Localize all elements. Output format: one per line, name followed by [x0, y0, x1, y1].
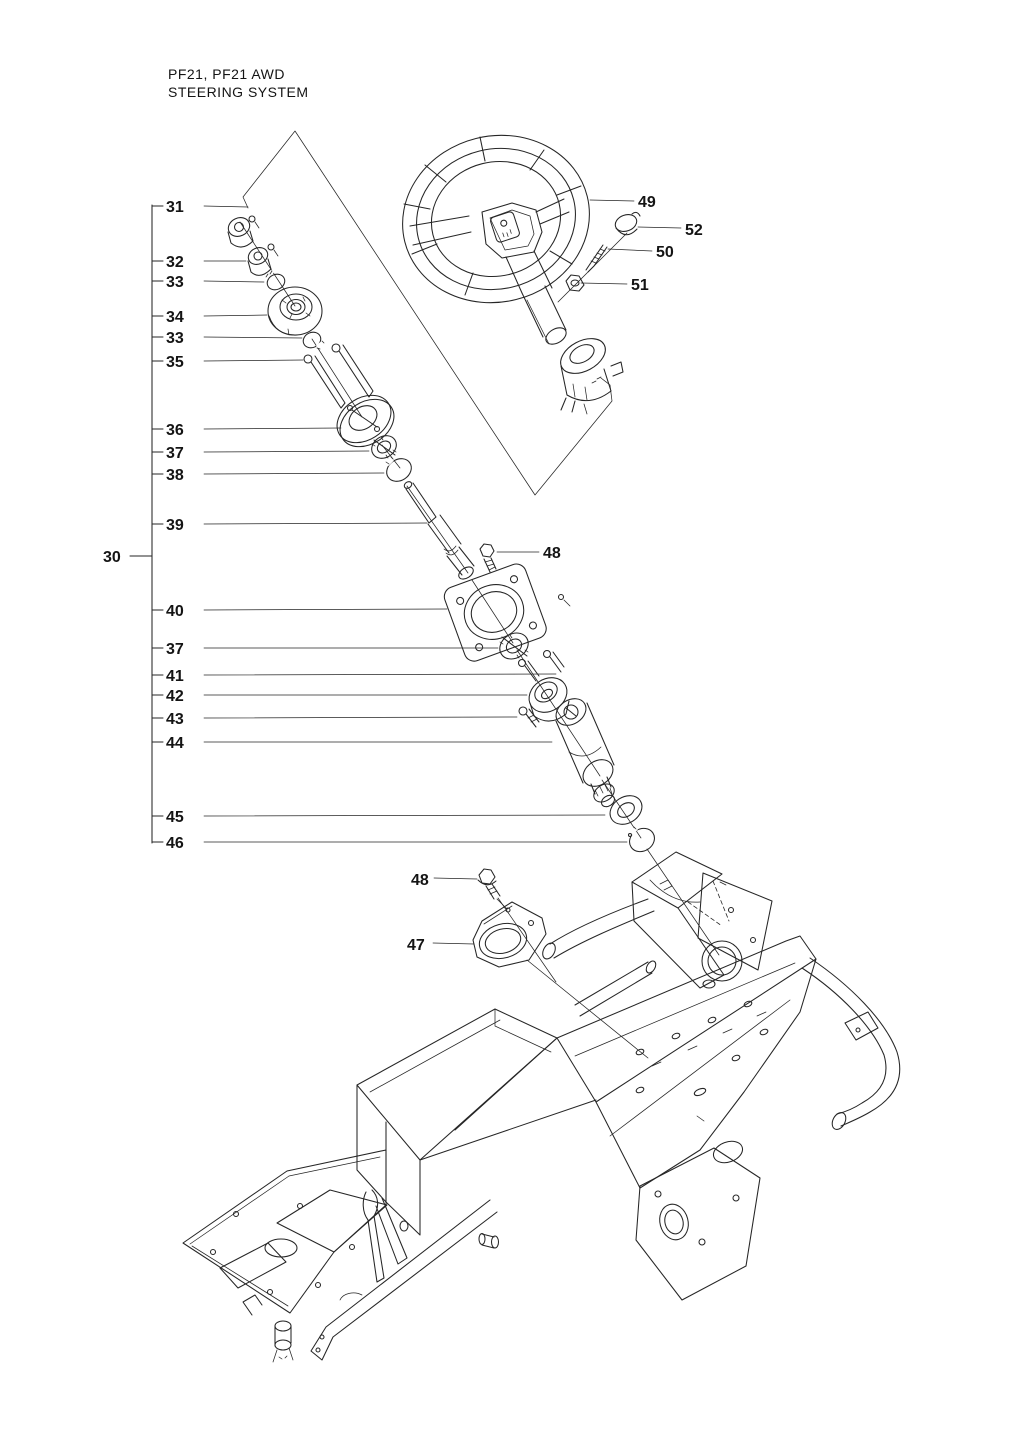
callout-47: 47	[407, 937, 425, 954]
column-parts	[225, 214, 659, 856]
floor-pan	[183, 1150, 387, 1313]
callout-48-lower: 48	[411, 872, 429, 889]
callout-32: 32	[166, 254, 184, 271]
callout-37-upper: 37	[166, 445, 184, 462]
tube-stub	[540, 899, 654, 961]
callout-33-upper: 33	[166, 274, 184, 291]
part-40-mount-plate	[442, 561, 570, 664]
callout-52: 52	[685, 222, 703, 239]
callout-40: 40	[166, 603, 184, 620]
steering-shaft-coupler	[555, 331, 623, 412]
bolt-48-lower	[478, 869, 507, 909]
part-31-bushing	[225, 214, 259, 247]
callout-46: 46	[166, 835, 184, 852]
front-rail	[311, 1200, 497, 1360]
wheel-hub-pad	[482, 203, 542, 258]
callout-37-lower: 37	[166, 641, 184, 658]
part-38-snap-ring	[382, 454, 415, 486]
support-bracket	[632, 852, 772, 988]
callout-44: 44	[166, 735, 184, 752]
callout-35: 35	[166, 354, 184, 371]
callout-36: 36	[166, 422, 184, 439]
wheel-rim-segments	[404, 137, 581, 295]
wheel-spokes	[410, 199, 569, 293]
part-46-snap-ring	[625, 824, 659, 857]
callout-31: 31	[166, 199, 184, 216]
chassis-frame	[183, 852, 900, 1362]
callout-48-upper: 48	[543, 545, 561, 562]
part-37-bearing-upper	[367, 431, 400, 463]
front-post	[243, 1295, 293, 1362]
callout-49: 49	[638, 194, 656, 211]
callout-42: 42	[166, 688, 184, 705]
callout-38: 38	[166, 467, 184, 484]
part-34-bearing-boss	[268, 287, 322, 335]
callout-33-lower: 33	[166, 330, 184, 347]
part-32-bushing	[246, 244, 278, 275]
handle-tube	[802, 958, 900, 1132]
steering-wheel	[385, 116, 608, 348]
callout-51: 51	[631, 277, 649, 294]
callout-41: 41	[166, 668, 184, 685]
callout-bracket	[130, 205, 163, 843]
callout-34: 34	[166, 309, 184, 326]
lower-axle-plate	[636, 1137, 760, 1300]
frame-pin	[479, 1234, 499, 1249]
part-37-bearing-lower	[495, 628, 533, 664]
callout-leader-lines	[204, 200, 681, 944]
cap-52	[613, 212, 640, 235]
part-42-cup	[523, 671, 574, 721]
callout-45: 45	[166, 809, 184, 826]
part-36-flange	[328, 386, 403, 457]
steering-system-exploded-diagram: PF21, PF21 AWD STEERING SYSTEM	[0, 0, 1024, 1435]
part-44-steering-valve	[551, 693, 618, 809]
diagram-page: PF21, PF21 AWD STEERING SYSTEM	[0, 0, 1024, 1435]
callout-43: 43	[166, 711, 184, 728]
screw-50	[586, 245, 607, 272]
callout-50: 50	[656, 244, 674, 261]
title-line-1: PF21, PF21 AWD	[168, 66, 285, 82]
tie-rod	[575, 959, 658, 1016]
wheel-fasteners	[566, 212, 640, 291]
callout-annotations: 30 31 32 33 34 33 35 36 37 38 39 40 37 4…	[103, 194, 703, 954]
callout-39: 39	[166, 517, 184, 534]
title-line-2: STEERING SYSTEM	[168, 84, 309, 100]
bolt-48-upper	[480, 544, 496, 572]
callout-30: 30	[103, 549, 121, 566]
reference-panel-outline	[243, 131, 612, 495]
part-35-studs	[304, 344, 373, 408]
page-title: PF21, PF21 AWD STEERING SYSTEM	[168, 66, 309, 100]
